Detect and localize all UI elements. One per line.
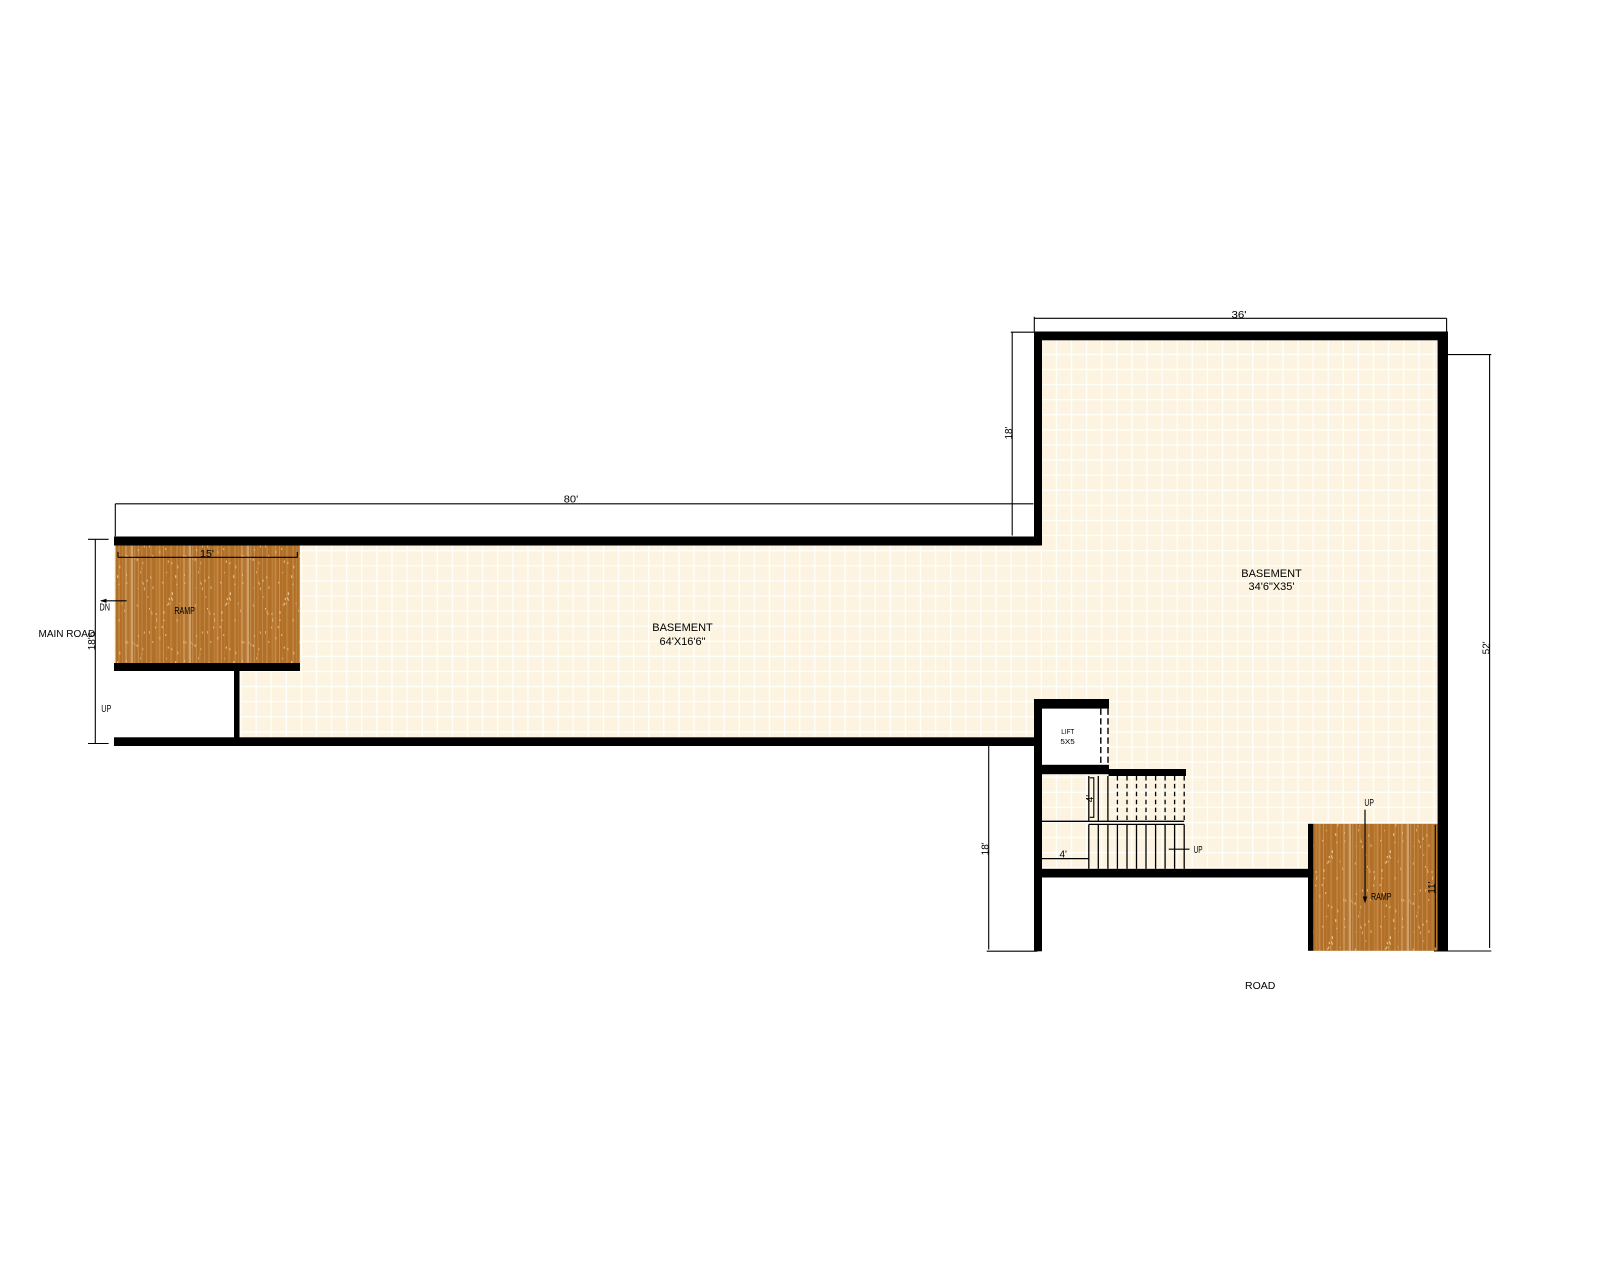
svg-text:MAIN ROAD: MAIN ROAD [39,629,96,640]
svg-text:64'X16'6": 64'X16'6" [659,636,705,648]
svg-text:5X5: 5X5 [1060,737,1074,746]
svg-text:52': 52' [1481,641,1492,654]
svg-text:RAMP: RAMP [1371,892,1392,903]
svg-text:18': 18' [1004,426,1015,439]
svg-text:11': 11' [1427,881,1438,893]
svg-text:4': 4' [1060,850,1068,861]
svg-text:4': 4' [1085,795,1096,803]
svg-text:LIFT: LIFT [1061,727,1074,736]
svg-text:80': 80' [564,495,579,506]
svg-text:15': 15' [200,549,214,560]
svg-text:RAMP: RAMP [174,606,195,617]
svg-text:DN: DN [100,603,111,614]
svg-text:36': 36' [1232,310,1247,321]
svg-text:BASEMENT: BASEMENT [652,622,713,634]
svg-text:ROAD: ROAD [1245,980,1276,992]
svg-text:BASEMENT: BASEMENT [1241,568,1302,580]
svg-text:UP: UP [1364,798,1374,809]
svg-text:UP: UP [101,704,111,715]
svg-text:34'6"X35': 34'6"X35' [1248,581,1294,593]
svg-text:18': 18' [980,842,991,855]
svg-text:UP: UP [1194,845,1203,856]
